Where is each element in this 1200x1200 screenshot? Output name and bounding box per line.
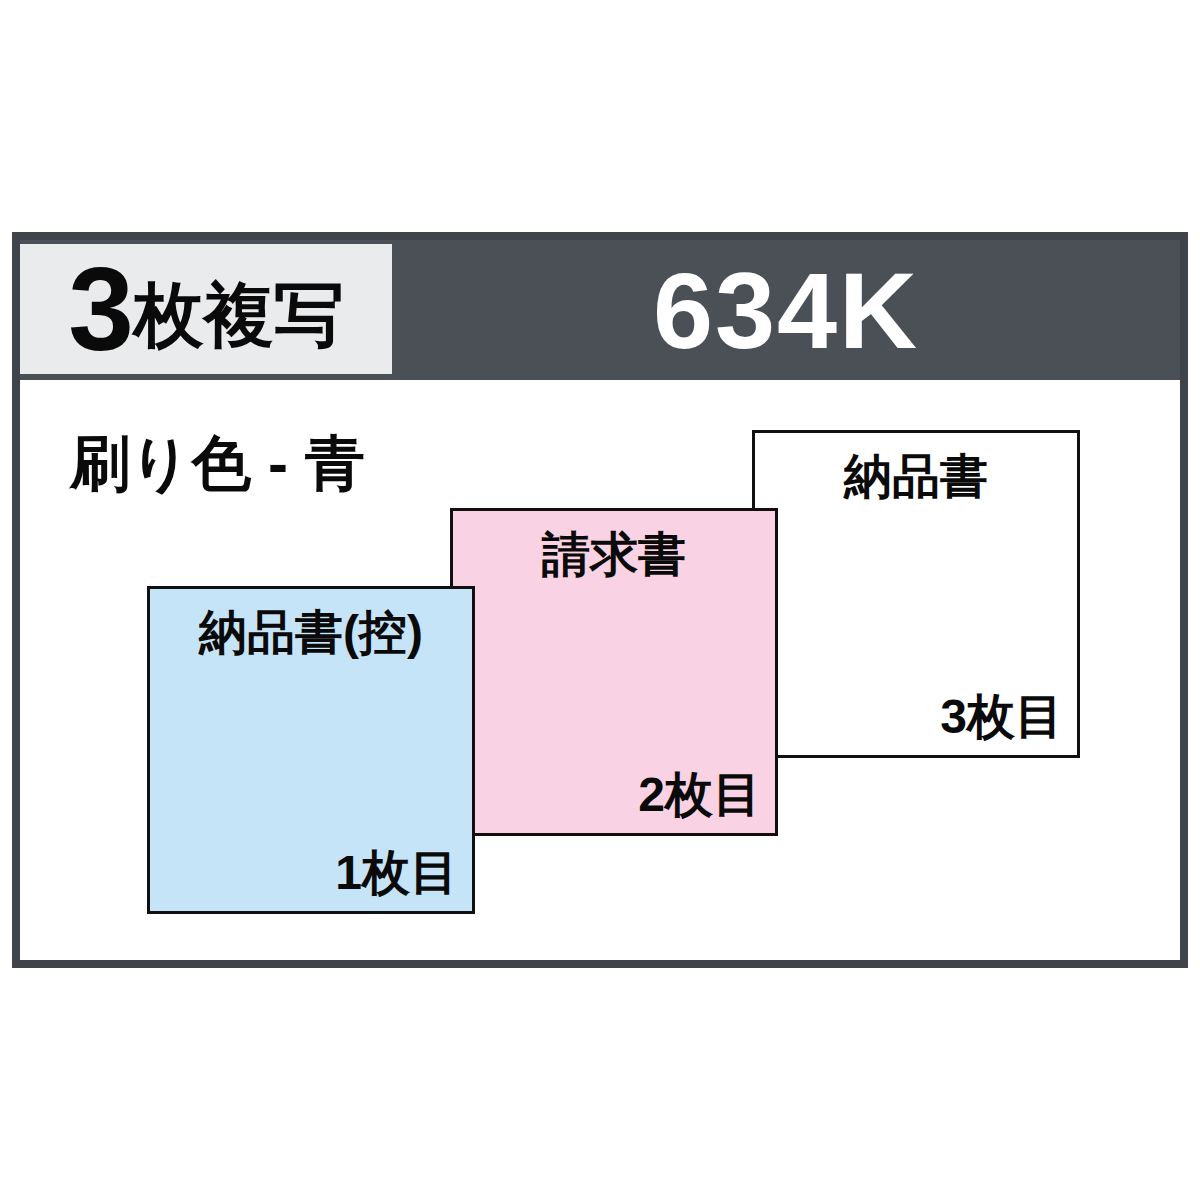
sheet-3-title: 納品書 bbox=[755, 445, 1077, 509]
model-number: 634K bbox=[392, 240, 1180, 380]
copies-count: 3 bbox=[68, 250, 132, 368]
product-diagram-canvas: 3 枚複写 634K 刷り色 - 青 納品書 3枚目 請求書 2枚目 納品書(控… bbox=[0, 0, 1200, 1200]
sheet-2-title: 請求書 bbox=[453, 523, 775, 587]
copies-badge: 3 枚複写 bbox=[20, 244, 392, 374]
sheet-1-order-label: 1枚目 bbox=[335, 841, 458, 905]
sheet-3-order-label: 3枚目 bbox=[940, 685, 1063, 749]
sheet-3-back: 納品書 3枚目 bbox=[752, 430, 1080, 758]
sheet-1-title: 納品書(控) bbox=[150, 601, 472, 665]
sheet-2-order-label: 2枚目 bbox=[638, 763, 761, 827]
copies-suffix-label: 枚複写 bbox=[134, 280, 344, 350]
sheet-1-front: 納品書(控) 1枚目 bbox=[147, 586, 475, 914]
sheet-2-middle: 請求書 2枚目 bbox=[450, 508, 778, 836]
header-bar: 3 枚複写 634K bbox=[20, 240, 1180, 380]
print-color-label: 刷り色 - 青 bbox=[70, 424, 365, 505]
product-info-panel: 3 枚複写 634K 刷り色 - 青 納品書 3枚目 請求書 2枚目 納品書(控… bbox=[12, 232, 1188, 968]
